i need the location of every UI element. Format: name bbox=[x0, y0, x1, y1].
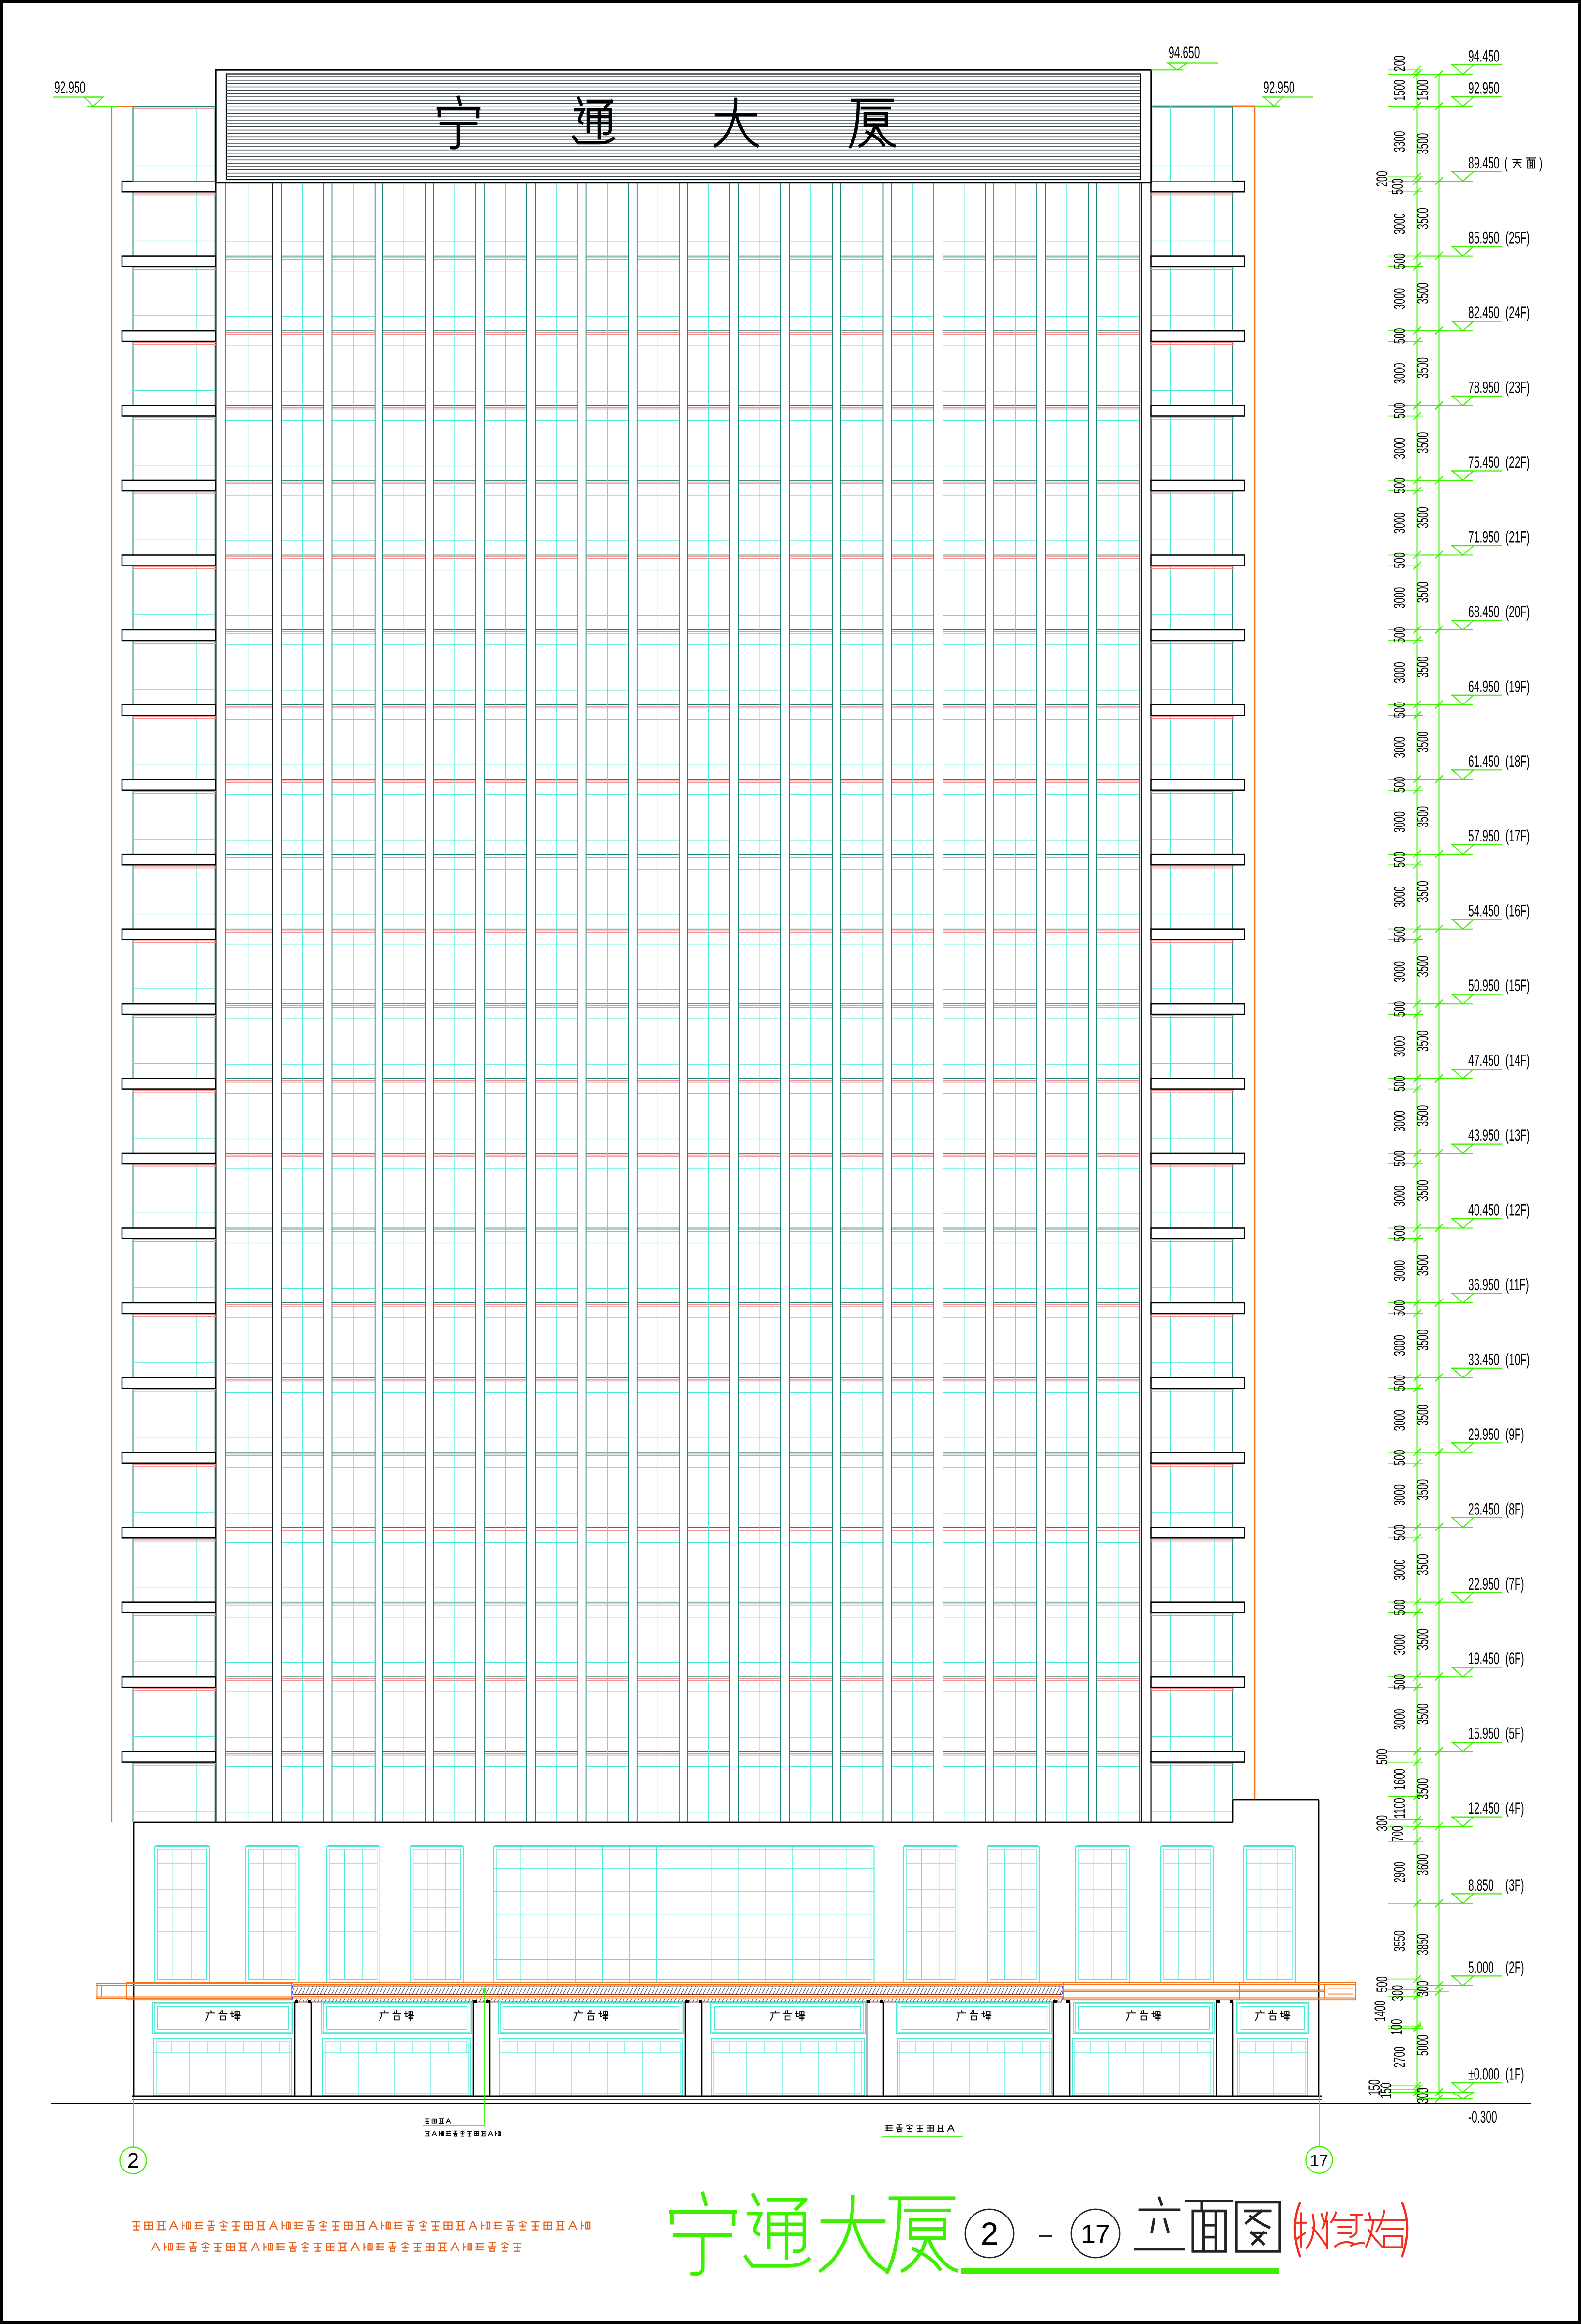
svg-text:3000: 3000 bbox=[1391, 587, 1408, 609]
svg-text:3000: 3000 bbox=[1391, 213, 1408, 234]
svg-text:(: ( bbox=[1505, 154, 1508, 172]
svg-text:500: 500 bbox=[1391, 1599, 1408, 1615]
svg-text:5000: 5000 bbox=[1414, 2034, 1431, 2056]
svg-text:17: 17 bbox=[1081, 2219, 1110, 2248]
svg-text:3000: 3000 bbox=[1391, 886, 1408, 907]
svg-text:92.950: 92.950 bbox=[54, 78, 85, 96]
svg-text:3000: 3000 bbox=[1391, 662, 1408, 683]
svg-text:3000: 3000 bbox=[1391, 288, 1408, 309]
svg-text:1500: 1500 bbox=[1391, 79, 1408, 101]
svg-text:(25F): (25F) bbox=[1505, 228, 1530, 246]
svg-text:(5F): (5F) bbox=[1505, 1724, 1524, 1742]
svg-text:(9F): (9F) bbox=[1505, 1425, 1524, 1443]
svg-text:3500: 3500 bbox=[1414, 1629, 1431, 1650]
svg-text:150: 150 bbox=[1377, 2083, 1395, 2099]
svg-text:15.950: 15.950 bbox=[1468, 1724, 1499, 1742]
svg-text:19.450: 19.450 bbox=[1468, 1649, 1499, 1667]
svg-text:(17F): (17F) bbox=[1505, 826, 1530, 845]
svg-text:(21F): (21F) bbox=[1505, 527, 1530, 546]
svg-text:(16F): (16F) bbox=[1505, 901, 1530, 919]
svg-text:8.850: 8.850 bbox=[1468, 1876, 1494, 1894]
svg-text:3500: 3500 bbox=[1414, 1404, 1431, 1425]
svg-text:75.450: 75.450 bbox=[1468, 453, 1499, 471]
svg-text:78.950: 78.950 bbox=[1468, 378, 1499, 396]
svg-text:3500: 3500 bbox=[1414, 283, 1431, 304]
svg-text:3500: 3500 bbox=[1414, 357, 1431, 379]
svg-text:1600: 1600 bbox=[1391, 1769, 1408, 1790]
svg-text:3000: 3000 bbox=[1391, 1709, 1408, 1730]
svg-text:3000: 3000 bbox=[1391, 512, 1408, 534]
svg-text:100: 100 bbox=[1388, 2019, 1405, 2035]
svg-text:500: 500 bbox=[1391, 1001, 1408, 1017]
svg-text:3500: 3500 bbox=[1414, 657, 1431, 678]
svg-text:3500: 3500 bbox=[1414, 208, 1431, 229]
svg-text:(23F): (23F) bbox=[1505, 378, 1530, 396]
svg-text:(18F): (18F) bbox=[1505, 752, 1530, 770]
svg-text:3600: 3600 bbox=[1414, 1854, 1431, 1875]
svg-text:500: 500 bbox=[1391, 1076, 1408, 1092]
svg-text:(2F): (2F) bbox=[1505, 1958, 1524, 1976]
svg-text:(7F): (7F) bbox=[1505, 1575, 1524, 1593]
svg-text:43.950: 43.950 bbox=[1468, 1126, 1499, 1144]
svg-text:500: 500 bbox=[1391, 328, 1408, 344]
svg-text:82.450: 82.450 bbox=[1468, 303, 1499, 321]
svg-text:(1F): (1F) bbox=[1505, 2064, 1524, 2083]
svg-text:3500: 3500 bbox=[1414, 1554, 1431, 1575]
svg-text:500: 500 bbox=[1391, 926, 1408, 942]
svg-text:40.450: 40.450 bbox=[1468, 1200, 1499, 1219]
svg-text:3500: 3500 bbox=[1414, 1479, 1431, 1500]
svg-text:(12F): (12F) bbox=[1505, 1200, 1530, 1219]
svg-text:500: 500 bbox=[1391, 552, 1408, 568]
svg-text:3000: 3000 bbox=[1391, 1260, 1408, 1282]
svg-text:94.450: 94.450 bbox=[1468, 46, 1499, 65]
svg-text:3500: 3500 bbox=[1414, 1778, 1431, 1800]
svg-text:500: 500 bbox=[1391, 1525, 1408, 1541]
svg-text:2700: 2700 bbox=[1391, 2047, 1408, 2068]
svg-text:(6F): (6F) bbox=[1505, 1649, 1524, 1667]
svg-text:3000: 3000 bbox=[1391, 737, 1408, 758]
svg-text:64.950: 64.950 bbox=[1468, 677, 1499, 695]
svg-text:1500: 1500 bbox=[1414, 79, 1431, 101]
svg-text:500: 500 bbox=[1391, 852, 1408, 868]
svg-text:200: 200 bbox=[1373, 171, 1391, 187]
svg-text:85.950: 85.950 bbox=[1468, 228, 1499, 246]
svg-text:(8F): (8F) bbox=[1505, 1499, 1524, 1518]
svg-text:(13F): (13F) bbox=[1505, 1126, 1530, 1144]
svg-text:300: 300 bbox=[1414, 2088, 1431, 2104]
svg-text:(10F): (10F) bbox=[1505, 1350, 1530, 1368]
svg-text:94.650: 94.650 bbox=[1169, 43, 1200, 61]
svg-text:3000: 3000 bbox=[1391, 961, 1408, 982]
svg-text:3000: 3000 bbox=[1391, 1634, 1408, 1655]
svg-text:(19F): (19F) bbox=[1505, 677, 1530, 695]
svg-text:3000: 3000 bbox=[1391, 1111, 1408, 1132]
svg-text:500: 500 bbox=[1389, 179, 1406, 195]
svg-text:2: 2 bbox=[981, 2216, 999, 2251]
svg-text:1100: 1100 bbox=[1391, 1798, 1408, 1819]
svg-text:29.950: 29.950 bbox=[1468, 1425, 1499, 1443]
svg-text:500: 500 bbox=[1391, 477, 1408, 493]
svg-text:500: 500 bbox=[1391, 777, 1408, 793]
svg-text:33.450: 33.450 bbox=[1468, 1350, 1499, 1368]
svg-text:-0.300: -0.300 bbox=[1468, 2108, 1497, 2126]
svg-text:3550: 3550 bbox=[1391, 1930, 1408, 1952]
svg-text:3500: 3500 bbox=[1414, 1180, 1431, 1201]
svg-text:3500: 3500 bbox=[1414, 1703, 1431, 1725]
svg-text:71.950: 71.950 bbox=[1468, 527, 1499, 546]
svg-text:3500: 3500 bbox=[1414, 133, 1431, 154]
svg-text:3000: 3000 bbox=[1391, 811, 1408, 833]
svg-text:2900: 2900 bbox=[1391, 1862, 1408, 1883]
svg-text:(3F): (3F) bbox=[1505, 1876, 1524, 1894]
svg-text:17: 17 bbox=[1310, 2152, 1328, 2170]
svg-text:(4F): (4F) bbox=[1505, 1799, 1524, 1817]
svg-text:(20F): (20F) bbox=[1505, 602, 1530, 621]
svg-text:(22F): (22F) bbox=[1505, 453, 1530, 471]
svg-text:89.450: 89.450 bbox=[1468, 153, 1499, 172]
svg-text:5.000: 5.000 bbox=[1468, 1958, 1494, 1976]
svg-text:3300: 3300 bbox=[1391, 131, 1408, 152]
svg-text:3000: 3000 bbox=[1391, 1335, 1408, 1356]
svg-text:26.450: 26.450 bbox=[1468, 1499, 1499, 1518]
svg-text:3000: 3000 bbox=[1391, 1036, 1408, 1057]
svg-text:3000: 3000 bbox=[1391, 438, 1408, 459]
svg-text:47.450: 47.450 bbox=[1468, 1051, 1499, 1069]
svg-text:300: 300 bbox=[1373, 1815, 1391, 1831]
svg-text:3000: 3000 bbox=[1391, 1484, 1408, 1506]
svg-text:500: 500 bbox=[1391, 702, 1408, 718]
svg-text:500: 500 bbox=[1391, 253, 1408, 269]
svg-text:3850: 3850 bbox=[1414, 1934, 1431, 1955]
svg-text:22.950: 22.950 bbox=[1468, 1575, 1499, 1593]
svg-text:2: 2 bbox=[127, 2149, 139, 2172]
svg-text:92.950: 92.950 bbox=[1263, 78, 1294, 96]
svg-text:3000: 3000 bbox=[1391, 363, 1408, 384]
svg-text:500: 500 bbox=[1373, 1749, 1391, 1765]
svg-text:3500: 3500 bbox=[1414, 1254, 1431, 1276]
svg-text:3500: 3500 bbox=[1414, 1030, 1431, 1052]
svg-text:3500: 3500 bbox=[1414, 1330, 1431, 1351]
svg-text:36.950: 36.950 bbox=[1468, 1275, 1499, 1294]
svg-text:500: 500 bbox=[1373, 1976, 1391, 1992]
svg-text:3500: 3500 bbox=[1414, 1105, 1431, 1127]
svg-text:500: 500 bbox=[1391, 1150, 1408, 1166]
svg-text:500: 500 bbox=[1391, 403, 1408, 419]
svg-text:3500: 3500 bbox=[1414, 507, 1431, 528]
svg-text:): ) bbox=[1539, 154, 1543, 172]
svg-text:500: 500 bbox=[1391, 1300, 1408, 1316]
svg-text:3500: 3500 bbox=[1414, 581, 1431, 603]
svg-text:500: 500 bbox=[1391, 1375, 1408, 1391]
svg-text:57.950: 57.950 bbox=[1468, 826, 1499, 845]
svg-text:500: 500 bbox=[1391, 1674, 1408, 1690]
svg-text:700: 700 bbox=[1389, 1826, 1406, 1842]
svg-text:61.450: 61.450 bbox=[1468, 752, 1499, 770]
svg-text:(14F): (14F) bbox=[1505, 1051, 1530, 1069]
svg-text:12.450: 12.450 bbox=[1468, 1799, 1499, 1817]
svg-text:3500: 3500 bbox=[1414, 806, 1431, 827]
svg-text:3500: 3500 bbox=[1414, 731, 1431, 752]
svg-text:(15F): (15F) bbox=[1505, 976, 1530, 994]
svg-text:(24F): (24F) bbox=[1505, 303, 1530, 321]
svg-text:200: 200 bbox=[1391, 55, 1408, 71]
svg-text:500: 500 bbox=[1391, 1225, 1408, 1241]
svg-text:3000: 3000 bbox=[1391, 1410, 1408, 1431]
svg-text:3500: 3500 bbox=[1414, 432, 1431, 453]
svg-text:68.450: 68.450 bbox=[1468, 602, 1499, 621]
svg-text:500: 500 bbox=[1391, 1450, 1408, 1466]
svg-text:3500: 3500 bbox=[1414, 956, 1431, 977]
svg-text:300: 300 bbox=[1389, 1985, 1406, 2001]
svg-text:1400: 1400 bbox=[1371, 2001, 1389, 2022]
svg-text:300: 300 bbox=[1414, 1981, 1431, 1997]
svg-text:±0.000: ±0.000 bbox=[1468, 2064, 1499, 2083]
svg-text:3000: 3000 bbox=[1391, 1185, 1408, 1207]
svg-text:3000: 3000 bbox=[1391, 1559, 1408, 1580]
svg-text:3500: 3500 bbox=[1414, 881, 1431, 902]
svg-text:50.950: 50.950 bbox=[1468, 976, 1499, 994]
svg-text:500: 500 bbox=[1391, 627, 1408, 643]
svg-text:(11F): (11F) bbox=[1505, 1275, 1529, 1294]
svg-text:92.950: 92.950 bbox=[1468, 78, 1499, 97]
svg-text:54.450: 54.450 bbox=[1468, 901, 1499, 919]
